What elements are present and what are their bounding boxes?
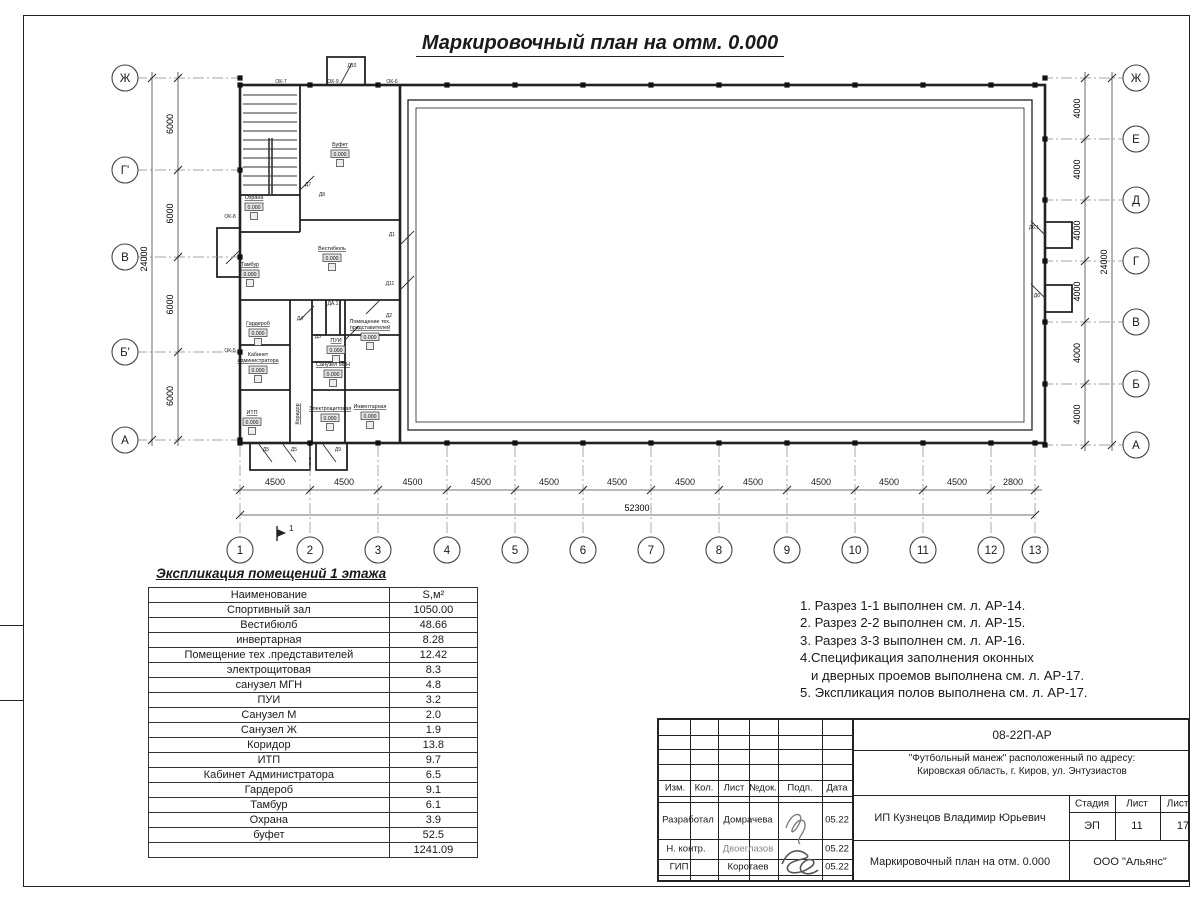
opening-label-Д6: Д6 (1034, 293, 1040, 299)
schedule-cell-area: 8.3 (389, 663, 477, 678)
note-line: 3. Разрез 3-3 выполнен см. л. АР-16. (800, 632, 1088, 649)
schedule-cell-area: 12.42 (389, 648, 477, 663)
axis-bubble-col-1: 1 (227, 537, 253, 563)
schedule-cell-area: 52.5 (389, 828, 477, 843)
tb-stage-label: Стадия (1075, 799, 1109, 810)
svg-text:Б: Б (1132, 379, 1140, 391)
axis-bubble-col-11: 11 (910, 537, 936, 563)
schedule-cell-name: Гардероб (149, 783, 390, 798)
tb-client: ИП Кузнецов Владимир Юрьевич (874, 812, 1045, 824)
axis-bubble-right-Е: Е (1123, 126, 1149, 152)
tb-project-line1: "Футбольный манеж" расположенный по адре… (909, 752, 1136, 765)
svg-text:6000: 6000 (165, 203, 175, 223)
svg-text:1: 1 (289, 524, 294, 533)
door-swings (226, 63, 1045, 462)
tb-col-data: Дата (826, 783, 847, 794)
axis-bubble-col-12: 12 (978, 537, 1004, 563)
svg-text:Буфет: Буфет (332, 142, 348, 148)
svg-text:4000: 4000 (1072, 343, 1082, 363)
schedule-cell-area: 48.66 (389, 618, 477, 633)
schedule-header-area: S,м² (389, 588, 477, 603)
opening-label-Д4: Д4 (297, 316, 303, 322)
opening-label-ОК-9: ОК-9 (327, 79, 338, 85)
axis-bubble-col-5: 5 (502, 537, 528, 563)
opening-label-Д9: Д9 (335, 447, 341, 453)
tb-role-developer: Разработал (662, 815, 714, 826)
schedule-total-value: 1241.09 (389, 843, 477, 858)
tb-sheets-label: Листов (1167, 799, 1190, 810)
opening-labels: ОК-7ОК-9Д10ОК-6ОК-8ОК-5Д7Д8Д1Д11ДА.1Д4Д3… (224, 63, 1040, 453)
schedule-cell-name: Охрана (149, 813, 390, 828)
tb-sheet-value: 11 (1131, 820, 1142, 832)
svg-text:52300: 52300 (624, 503, 649, 513)
svg-text:Г: Г (1133, 256, 1140, 268)
svg-text:Ж: Ж (120, 73, 131, 85)
schedule-cell-area: 9.7 (389, 753, 477, 768)
tb-doc-title: Маркировочный план на отм. 0.000 (870, 856, 1050, 868)
svg-text:В: В (121, 252, 129, 264)
svg-text:4500: 4500 (607, 477, 627, 487)
section-mark: 1 (277, 524, 294, 541)
note-line: 4.Спецификация заполнения оконных (800, 649, 1088, 666)
svg-text:6: 6 (580, 545, 586, 557)
signature-strokes (778, 806, 822, 882)
schedule-header-row: Наименование S,м² (149, 588, 478, 603)
svg-text:7: 7 (648, 545, 654, 557)
svg-text:0.000: 0.000 (248, 205, 261, 211)
svg-text:0.000: 0.000 (330, 348, 343, 354)
svg-text:Вестибюль: Вестибюль (318, 246, 346, 252)
svg-text:4: 4 (444, 545, 451, 557)
svg-text:0.000: 0.000 (327, 372, 340, 378)
room-label: Кабинетадминистратора0.000 (237, 352, 278, 383)
svg-text:0.000: 0.000 (334, 152, 347, 158)
drawing-sheet: Маркировочный план на отм. 0.000 4500450… (0, 0, 1200, 900)
schedule-cell-area: 8.28 (389, 633, 477, 648)
svg-text:ИТП: ИТП (246, 410, 257, 416)
tb-project-name: "Футбольный манеж" расположенный по адре… (909, 752, 1136, 778)
svg-text:Б': Б' (120, 347, 130, 359)
tb-col-kol: Кол. (695, 783, 714, 794)
schedule-cell-area: 9.1 (389, 783, 477, 798)
svg-text:В: В (1132, 317, 1140, 329)
notes-list: 1. Разрез 1-1 выполнен см. л. АР-14.2. Р… (800, 597, 1088, 701)
opening-label-Д7: Д7 (305, 182, 311, 188)
svg-text:0.000: 0.000 (364, 414, 377, 420)
opening-label-Д6.1: Д6.1 (1029, 225, 1040, 231)
axis-bubble-col-6: 6 (570, 537, 596, 563)
svg-text:Гардероб: Гардероб (246, 321, 270, 327)
svg-text:4500: 4500 (811, 477, 831, 487)
svg-text:13: 13 (1029, 545, 1042, 557)
svg-text:представителей: представителей (350, 324, 390, 331)
svg-text:Е: Е (1132, 134, 1140, 146)
svg-text:Д: Д (1132, 195, 1140, 207)
axis-bubble-right-Д: Д (1123, 187, 1149, 213)
schedule-row: Вестибюлб48.66 (149, 618, 478, 633)
svg-text:4000: 4000 (1072, 404, 1082, 424)
svg-text:4000: 4000 (1072, 159, 1082, 179)
svg-text:4500: 4500 (879, 477, 899, 487)
svg-text:Ж: Ж (1131, 73, 1142, 85)
axis-bubble-left-Б': Б' (112, 339, 138, 365)
note-line: 2. Разрез 2-2 выполнен см. л. АР-15. (800, 614, 1088, 631)
tb-name-developer: Домрачева (723, 815, 772, 826)
axis-bubble-left-А: А (112, 427, 138, 453)
schedule-header-name: Наименование (149, 588, 390, 603)
opening-label-Д5: Д5 (291, 447, 297, 453)
schedule-row: ИТП9.7 (149, 753, 478, 768)
svg-text:2800: 2800 (1003, 477, 1023, 487)
room-label: Вестибюль0.000 (318, 246, 346, 271)
schedule-cell-area: 1050.00 (389, 603, 477, 618)
room-label: Буфет0.000 (331, 142, 349, 167)
svg-text:24000: 24000 (139, 246, 149, 271)
room-schedule: Экспликация помещений 1 этажа Наименован… (148, 566, 480, 858)
svg-text:0.000: 0.000 (324, 416, 337, 422)
svg-text:8: 8 (716, 545, 722, 557)
axis-bubble-right-В: В (1123, 309, 1149, 335)
tb-date-developer: 05.22 (825, 815, 849, 826)
axis-bubble-col-13: 13 (1022, 537, 1048, 563)
tb-date-gip: 05.22 (825, 862, 849, 873)
svg-text:4500: 4500 (743, 477, 763, 487)
schedule-cell-area: 1.9 (389, 723, 477, 738)
axis-bubble-right-А: А (1123, 432, 1149, 458)
room-label: Гардероб0.000 (246, 321, 270, 346)
opening-label-Д2: Д2 (386, 313, 392, 319)
note-line: 1. Разрез 1-1 выполнен см. л. АР-14. (800, 597, 1088, 614)
schedule-cell-name: электрощитовая (149, 663, 390, 678)
svg-text:6000: 6000 (165, 386, 175, 406)
room-label: ИТП0.000 (243, 410, 261, 435)
svg-text:24000: 24000 (1099, 249, 1109, 274)
tb-role-gip: ГИП (670, 862, 689, 873)
opening-label-Д5: Д5 (263, 447, 269, 453)
tb-col-podp: Подп. (787, 783, 812, 794)
axis-bubble-col-7: 7 (638, 537, 664, 563)
schedule-cell-name: буфет (149, 828, 390, 843)
schedule-cell-name: инвертарная (149, 633, 390, 648)
schedule-cell-area: 2.0 (389, 708, 477, 723)
tb-name-gip: Коротаев (727, 862, 768, 873)
column-marks (237, 75, 1047, 447)
axis-bubble-right-Ж: Ж (1123, 65, 1149, 91)
opening-label-ОК-8: ОК-8 (224, 214, 235, 220)
schedule-cell-name: Спортивный зал (149, 603, 390, 618)
svg-text:0.000: 0.000 (326, 256, 339, 262)
schedule-row: ПУИ3.2 (149, 693, 478, 708)
schedule-title: Экспликация помещений 1 этажа (156, 566, 480, 581)
schedule-cell-area: 3.2 (389, 693, 477, 708)
opening-label-Д11: Д11 (386, 281, 395, 287)
tb-date-ncontr: 05.22 (825, 844, 849, 855)
schedule-row: Кабинет Администратора6.5 (149, 768, 478, 783)
tb-role-ncontr: Н. контр. (666, 844, 705, 855)
axis-bubble-left-В: В (112, 244, 138, 270)
svg-text:0.000: 0.000 (246, 420, 259, 426)
svg-text:6000: 6000 (165, 294, 175, 314)
svg-text:11: 11 (917, 545, 929, 557)
schedule-row: Коридор13.8 (149, 738, 478, 753)
svg-text:4500: 4500 (471, 477, 491, 487)
svg-text:4000: 4000 (1072, 281, 1082, 301)
schedule-row: Помещение тех .представителей12.42 (149, 648, 478, 663)
svg-text:4500: 4500 (334, 477, 354, 487)
schedule-row: Спортивный зал1050.00 (149, 603, 478, 618)
svg-text:4500: 4500 (947, 477, 967, 487)
schedule-cell-name: Вестибюлб (149, 618, 390, 633)
schedule-cell-name: Кабинет Администратора (149, 768, 390, 783)
room-label: Инвентарная0.000 (354, 404, 387, 429)
axis-bubble-left-Г': Г' (112, 157, 138, 183)
axis-bubble-col-9: 9 (774, 537, 800, 563)
opening-label-Д3: Д3 (315, 334, 321, 340)
schedule-total-row: 1241.09 (149, 843, 478, 858)
tb-stage-value: ЭП (1084, 820, 1100, 832)
svg-text:0.000: 0.000 (364, 335, 377, 341)
schedule-cell-area: 4.8 (389, 678, 477, 693)
axis-bubble-right-Г: Г (1123, 248, 1149, 274)
schedule-cell-area: 6.5 (389, 768, 477, 783)
svg-text:Охрана: Охрана (245, 195, 264, 201)
schedule-row: электрощитовая8.3 (149, 663, 478, 678)
schedule-cell-name: Санузел М (149, 708, 390, 723)
svg-text:4000: 4000 (1072, 98, 1082, 118)
axis-bubble-col-10: 10 (842, 537, 868, 563)
svg-text:2: 2 (307, 545, 313, 557)
svg-text:Коридор: Коридор (295, 403, 301, 424)
schedule-cell-area: 6.1 (389, 798, 477, 813)
svg-text:1: 1 (237, 545, 243, 557)
room-label: Тамбур0.000 (241, 262, 259, 287)
svg-text:0.000: 0.000 (252, 368, 265, 374)
room-label: ПУИ0.000 (327, 338, 345, 363)
tb-doc-code: 08-22П-АР (992, 728, 1051, 742)
schedule-total-empty (149, 843, 390, 858)
svg-text:4500: 4500 (675, 477, 695, 487)
axis-bubble-right-Б: Б (1123, 371, 1149, 397)
schedule-row: инвертарная8.28 (149, 633, 478, 648)
opening-label-ОК-6: ОК-6 (386, 79, 397, 85)
svg-text:Санузел МГН: Санузел МГН (316, 362, 350, 368)
svg-text:ПУИ: ПУИ (330, 338, 341, 344)
schedule-cell-area: 3.9 (389, 813, 477, 828)
svg-text:4500: 4500 (402, 477, 422, 487)
svg-text:А: А (1132, 440, 1140, 452)
room-label: Охрана0.000 (245, 195, 264, 220)
svg-text:0.000: 0.000 (244, 272, 257, 278)
schedule-row: Санузел Ж1.9 (149, 723, 478, 738)
tb-sheets-value: 17 (1177, 820, 1189, 832)
schedule-table: Наименование S,м² Спортивный зал1050.00В… (148, 587, 478, 858)
svg-text:4500: 4500 (265, 477, 285, 487)
room-label: Коридор (295, 403, 301, 424)
schedule-cell-name: ПУИ (149, 693, 390, 708)
schedule-cell-name: Коридор (149, 738, 390, 753)
schedule-cell-name: Тамбур (149, 798, 390, 813)
schedule-row: санузел МГН4.8 (149, 678, 478, 693)
schedule-row: Охрана3.9 (149, 813, 478, 828)
svg-text:12: 12 (985, 545, 998, 557)
svg-text:3: 3 (375, 545, 381, 557)
opening-label-ОК-7: ОК-7 (275, 79, 286, 85)
svg-text:А: А (121, 435, 129, 447)
svg-text:Г': Г' (121, 165, 129, 177)
svg-text:4000: 4000 (1072, 220, 1082, 240)
schedule-cell-name: санузел МГН (149, 678, 390, 693)
tb-company: ООО "Альянс" (1093, 856, 1167, 868)
note-line: 5. Экспликация полов выполнена см. л. АР… (800, 684, 1088, 701)
staircase (243, 95, 297, 195)
opening-label-Д1: Д1 (389, 232, 395, 238)
svg-text:4500: 4500 (539, 477, 559, 487)
dimension-lines: 4500450045004500450045004500450045004500… (139, 72, 1116, 519)
svg-text:администратора: администратора (237, 358, 278, 364)
schedule-row: Гардероб9.1 (149, 783, 478, 798)
tb-col-ndok: №док. (749, 783, 777, 794)
schedule-row: буфет52.5 (149, 828, 478, 843)
svg-text:0.000: 0.000 (252, 331, 265, 337)
opening-label-Д8: Д8 (319, 192, 325, 198)
axis-bubble-col-2: 2 (297, 537, 323, 563)
schedule-row: Санузел М2.0 (149, 708, 478, 723)
tb-project-line2: Кировская область, г. Киров, ул. Энтузиа… (909, 765, 1136, 778)
svg-text:6000: 6000 (165, 114, 175, 134)
axis-leader-lines (136, 78, 1124, 537)
opening-label-ДА.1: ДА.1 (328, 301, 339, 307)
title-block: Изм. Кол. Лист №док. Подп. Дата Разработ… (657, 718, 1190, 882)
schedule-row: Тамбур6.1 (149, 798, 478, 813)
svg-text:10: 10 (849, 545, 862, 557)
svg-text:Электрощитовая: Электрощитовая (309, 406, 351, 412)
tb-col-list: Лист (724, 783, 745, 794)
axis-bubble-col-8: 8 (706, 537, 732, 563)
tb-col-izm: Изм. (665, 783, 685, 794)
tb-sheet-label: Лист (1126, 799, 1148, 810)
svg-text:Инвентарная: Инвентарная (354, 404, 387, 410)
tb-name-ncontr: Двоеглазов (723, 844, 774, 855)
svg-text:Тамбур: Тамбур (241, 262, 259, 268)
opening-label-ОК-5: ОК-5 (224, 348, 235, 354)
opening-label-Д10: Д10 (348, 63, 357, 69)
svg-text:5: 5 (512, 545, 518, 557)
note-line: и дверных проемов выполнена см. л. АР-17… (800, 667, 1088, 684)
axis-bubble-col-3: 3 (365, 537, 391, 563)
schedule-cell-area: 13.8 (389, 738, 477, 753)
schedule-cell-name: Помещение тех .представителей (149, 648, 390, 663)
axis-bubble-left-Ж: Ж (112, 65, 138, 91)
svg-text:9: 9 (784, 545, 790, 557)
axis-bubble-col-4: 4 (434, 537, 460, 563)
schedule-cell-name: ИТП (149, 753, 390, 768)
schedule-cell-name: Санузел Ж (149, 723, 390, 738)
